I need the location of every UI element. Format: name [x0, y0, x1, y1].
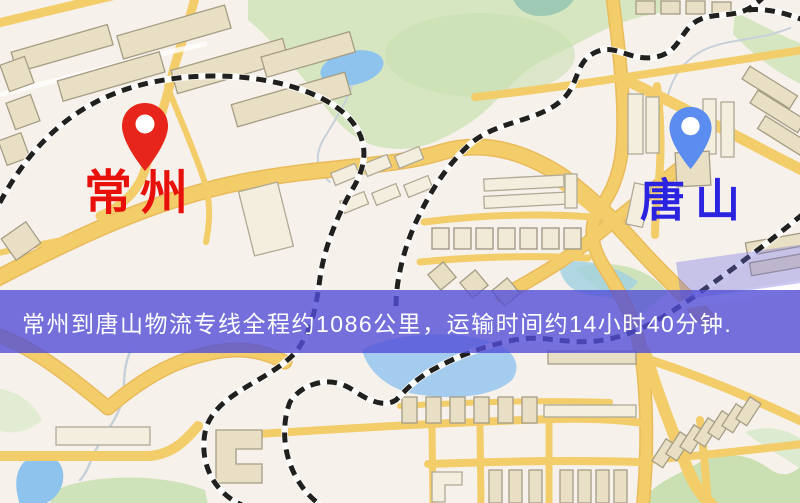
- logistics-route-map: 常州 唐山 常州到唐山物流专线全程约1086公里，运输时间约14小时40分钟.: [0, 0, 800, 503]
- origin-pin: [121, 102, 169, 172]
- destination-pin-icon: [668, 106, 713, 170]
- destination-pin: [668, 106, 713, 170]
- origin-pin-icon: [121, 102, 169, 172]
- route-info-banner: 常州到唐山物流专线全程约1086公里，运输时间约14小时40分钟.: [0, 290, 800, 353]
- destination-city-label: 唐山: [640, 178, 750, 223]
- map-image: [0, 0, 800, 503]
- origin-city-label: 常州: [84, 170, 196, 218]
- route-info-text: 常州到唐山物流专线全程约1086公里，运输时间约14小时40分钟.: [0, 305, 732, 339]
